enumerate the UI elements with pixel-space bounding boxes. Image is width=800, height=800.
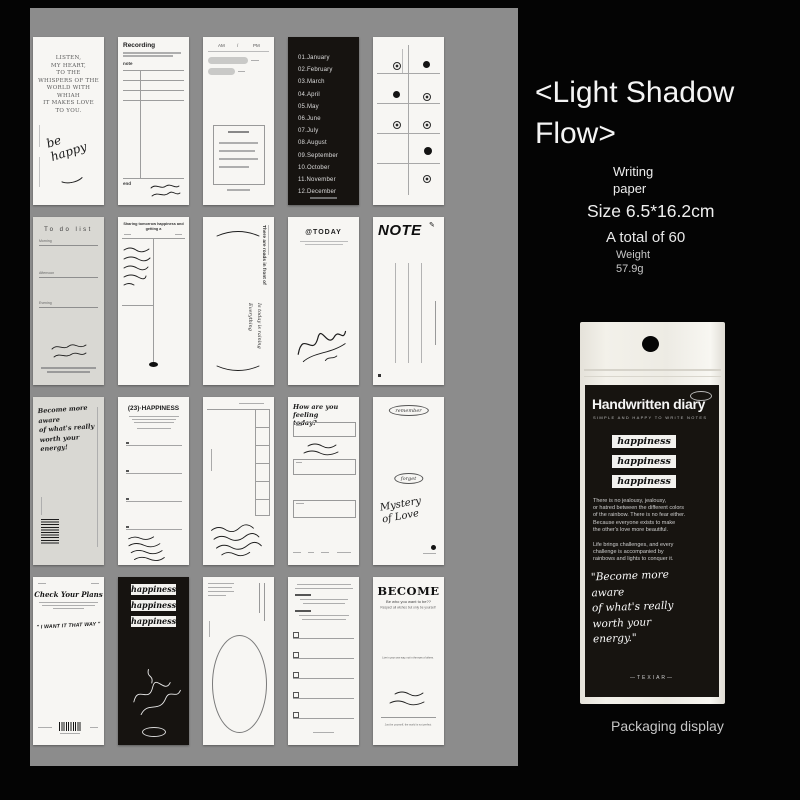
- divider-line: [381, 717, 436, 718]
- smile-arc: [56, 164, 87, 185]
- micro-text-line: [209, 621, 210, 637]
- micro-text: [337, 552, 351, 553]
- card-tomorrow-header: Sharing tomorrow happiness and getting a: [121, 222, 186, 232]
- ruled-line: [123, 70, 184, 71]
- paper-card-recording: Recording note end: [118, 37, 189, 205]
- table-line: [255, 499, 270, 500]
- micro-text: [132, 419, 176, 420]
- micro-text: [227, 189, 250, 191]
- packaging-footer-brand: —TEXIAR—: [585, 675, 719, 681]
- product-title: <Light Shadow Flow>: [535, 72, 734, 154]
- micro-text: [219, 158, 258, 160]
- signature-scribble: [118, 657, 188, 727]
- micro-text: [123, 52, 181, 54]
- packaging-quote: "Become more aware of what's really wort…: [591, 568, 675, 648]
- micro-text: [238, 71, 245, 72]
- card-become-gray-handwriting: Become more aware of what's really worth…: [37, 403, 100, 455]
- card-checkplans-handwriting: " I WANT IT THAT WAY ": [35, 621, 102, 630]
- solid-dot: [424, 147, 432, 155]
- micro-text: [129, 416, 179, 417]
- list-letter: [126, 498, 129, 500]
- happiness-label: happiness: [131, 600, 176, 611]
- packaging-caption: Packaging display: [611, 718, 724, 734]
- card-todolist-label1: Morning: [39, 239, 52, 243]
- highlight-blob: [208, 68, 235, 75]
- card-note-title: NOTE: [378, 222, 422, 239]
- micro-text: [297, 584, 351, 585]
- paper-card-happiness-list: (23)·HAPPINESS: [118, 397, 189, 565]
- table-line: [255, 481, 270, 482]
- circled-dot: [423, 175, 431, 183]
- column-line: [140, 70, 141, 179]
- happiness-label: happiness: [612, 475, 676, 488]
- micro-text: [60, 733, 80, 734]
- column-line: [153, 238, 154, 363]
- write-line: [293, 638, 354, 639]
- arc-bottom: [215, 363, 261, 375]
- write-line: [293, 718, 354, 719]
- paper-card-roads: There are roads in front of Is today is …: [203, 217, 274, 385]
- grid-line: [377, 163, 440, 164]
- paper-card-checkboxes: [288, 577, 359, 745]
- packaging-paragraph-2: Life brings challenges, and every challe…: [593, 542, 673, 564]
- seal-ridge: [584, 376, 721, 377]
- card-listen-text: LISTEN, MY HEART, TO THE WHISPERS OF THE…: [33, 55, 104, 115]
- handwriting-scribble: [387, 689, 431, 709]
- micro-text: [219, 166, 249, 168]
- happiness-label: happiness: [612, 455, 676, 468]
- grid-line: [377, 73, 440, 74]
- micro-text: [295, 588, 353, 589]
- circled-dot: [393, 62, 401, 70]
- card-become-title: BECOME: [373, 584, 444, 598]
- paper-card-feeling: How are you feeling today?: [288, 397, 359, 565]
- paper-card-table: [203, 397, 274, 565]
- table-line: [255, 515, 270, 516]
- micro-text: [308, 552, 314, 553]
- micro-text: [123, 55, 173, 57]
- ruled-line: [122, 305, 153, 306]
- paper-card-remember: remember forget Mystery of Love: [373, 397, 444, 565]
- card-roads-handwriting: Is today is raining Everything: [245, 303, 263, 349]
- corner-mark: [378, 374, 381, 377]
- ruled-line: [123, 90, 184, 91]
- brand-subtitle: Simple and happy to write notes: [593, 415, 707, 420]
- micro-text: [300, 599, 348, 600]
- packaging-photo: Handwritten diary Simple and happy to wr…: [580, 322, 725, 704]
- micro-text: [42, 605, 95, 606]
- write-line: [39, 245, 98, 246]
- pencil-icon: ✎: [429, 221, 435, 229]
- micro-text-line: [402, 49, 403, 73]
- micro-text: [239, 403, 264, 404]
- micro-text: [295, 594, 311, 596]
- card-todolist-label2: Afternoon: [39, 271, 54, 275]
- micro-text: [208, 595, 226, 596]
- micro-text: [47, 371, 90, 373]
- product-category: Writing paper: [613, 163, 653, 197]
- write-line: [126, 529, 182, 530]
- stamp-oval: [142, 727, 166, 737]
- arc-top: [215, 227, 261, 239]
- card-schedule-am: AM: [218, 43, 225, 48]
- micro-text: [208, 587, 232, 588]
- paper-card-today: @TODAY: [288, 217, 359, 385]
- seal-ridge: [584, 369, 721, 371]
- highlight-blob: [208, 57, 248, 64]
- write-line: [126, 473, 182, 474]
- micro-text-line: [259, 583, 260, 613]
- micro-text: [41, 367, 96, 369]
- signature-scribble: [49, 341, 89, 363]
- paper-card-listen: LISTEN, MY HEART, TO THE WHISPERS OF THE…: [33, 37, 104, 205]
- write-line: [39, 307, 98, 308]
- micro-text: [296, 462, 302, 463]
- grid-line: [408, 45, 409, 195]
- micro-text: [53, 608, 84, 609]
- happiness-label: happiness: [612, 435, 676, 448]
- grid-line: [377, 133, 440, 134]
- micro-text: [219, 142, 258, 144]
- card-roads-vertical-text: There are roads in front of: [261, 225, 266, 285]
- circled-dot: [393, 121, 401, 129]
- paper-card-checkplans: Check Your Plans " I WANT IT THAT WAY ": [33, 577, 104, 745]
- card-become-line3: Respect all wishes but only be yourself: [373, 606, 444, 610]
- micro-text-line: [39, 125, 40, 147]
- list-letter: [126, 526, 129, 528]
- micro-text: [305, 244, 343, 245]
- micro-text: [313, 732, 334, 733]
- product-size: Size 6.5*16.2cm: [587, 201, 714, 222]
- micro-text: [219, 150, 255, 152]
- card-remember-script: Mystery of Love: [379, 496, 424, 527]
- card-recording-end-label: end: [123, 181, 131, 186]
- micro-text: [134, 422, 174, 423]
- write-line: [293, 658, 354, 659]
- table-line: [255, 427, 270, 428]
- micro-text-line: [41, 497, 42, 515]
- write-line: [408, 263, 409, 363]
- micro-text: [208, 591, 234, 592]
- happiness-label: happiness: [131, 584, 176, 595]
- paper-card-happiness-black: happiness happiness happiness: [118, 577, 189, 745]
- paper-card-months: 01.January 02.February 03.March 04.April…: [288, 37, 359, 205]
- card-months-list: 01.January 02.February 03.March 04.April…: [298, 52, 338, 198]
- paper-card-tomorrow: Sharing tomorrow happiness and getting a: [118, 217, 189, 385]
- paper-card-become-gray: Become more aware of what's really worth…: [33, 397, 104, 565]
- micro-text: [296, 425, 302, 426]
- card-become-footer: Just be yourself, the world is not perfe…: [373, 723, 444, 726]
- micro-text: [423, 553, 436, 554]
- write-line: [293, 698, 354, 699]
- handwriting-scribble: [126, 533, 177, 563]
- micro-text: [293, 552, 301, 553]
- table-line: [207, 409, 270, 410]
- stamp-dot: [431, 545, 436, 550]
- paper-card-grid-dots: [373, 37, 444, 205]
- micro-text: [38, 583, 46, 584]
- write-line: [395, 263, 396, 363]
- write-line: [293, 678, 354, 679]
- handwriting-scribble: [302, 441, 346, 457]
- barcode: [59, 722, 82, 731]
- packaging-paragraph-1: There is no jealousy, jealousy, or hatre…: [593, 498, 685, 534]
- card-happiness-list-title: (23)·HAPPINESS: [118, 405, 189, 412]
- hang-hole: [642, 336, 659, 352]
- paper-cards-grid: LISTEN, MY HEART, TO THE WHISPERS OF THE…: [33, 37, 444, 745]
- paper-card-todolist: To do list Morning Afternoon Evening: [33, 217, 104, 385]
- ruled-line: [123, 80, 184, 81]
- list-letter: [126, 442, 129, 444]
- micro-text: [39, 602, 98, 603]
- paper-card-become-white: BECOME Be who you want to be?? Respect a…: [373, 577, 444, 745]
- answer-box: [293, 500, 356, 518]
- micro-text: [302, 619, 346, 620]
- paper-card-note: NOTE ✎: [373, 217, 444, 385]
- micro-text: [91, 583, 99, 584]
- card-become-midline: Live in your own way, not in the eyes of…: [374, 656, 442, 659]
- micro-text-line: [211, 449, 212, 471]
- micro-text: [310, 197, 337, 199]
- ruled-line: [208, 51, 269, 52]
- micro-text: [208, 583, 234, 584]
- barcode: [41, 519, 59, 545]
- ellipse-outline: [212, 635, 267, 733]
- card-todolist-title: To do list: [33, 227, 104, 233]
- ruled-line: [123, 178, 184, 179]
- paper-card-oval: [203, 577, 274, 745]
- micro-text: [303, 603, 345, 604]
- card-recording-title: Recording: [123, 42, 155, 49]
- card-schedule-pm: PM: [253, 43, 260, 48]
- card-schedule-slash: /: [237, 43, 238, 48]
- micro-text: [300, 241, 348, 242]
- brand-title: Handwritten diary: [592, 396, 705, 412]
- answer-box: [293, 459, 356, 475]
- answer-box: [293, 422, 356, 437]
- micro-text-line: [435, 301, 436, 345]
- product-total: A total of 60: [606, 229, 685, 246]
- signature-scribble: [148, 181, 182, 201]
- handwriting-scribble: [122, 245, 152, 287]
- card-checkplans-title: Check Your Plans: [33, 590, 104, 599]
- write-line: [126, 501, 182, 502]
- micro-text-line: [264, 583, 265, 621]
- forget-badge: forget: [394, 473, 423, 484]
- solid-dot: [393, 91, 400, 98]
- signature-scribble: [290, 317, 352, 370]
- micro-text: [137, 428, 171, 429]
- micro-text-line: [39, 157, 40, 187]
- micro-text: [124, 234, 131, 235]
- card-listen-handwriting: be happy: [45, 126, 89, 164]
- circled-dot: [423, 121, 431, 129]
- card-recording-note-label: note: [123, 61, 133, 66]
- grid-line: [377, 103, 440, 104]
- handwriting-scribble: [208, 520, 268, 559]
- write-line: [39, 277, 98, 278]
- solid-dot: [423, 61, 430, 68]
- micro-text: [175, 234, 182, 235]
- micro-text: [38, 727, 52, 728]
- micro-text: [295, 610, 311, 612]
- card-become-subtitle: Be who you want to be??: [373, 599, 444, 604]
- card-todolist-label3: Evening: [39, 301, 52, 305]
- write-line: [126, 445, 182, 446]
- micro-text: [299, 615, 349, 616]
- happiness-label: happiness: [131, 616, 176, 627]
- micro-text: [321, 552, 329, 553]
- diary-card: Handwritten diary Simple and happy to wr…: [585, 385, 719, 697]
- ruled-line: [123, 100, 184, 101]
- remember-badge: remember: [388, 405, 428, 416]
- list-letter: [126, 470, 129, 472]
- write-line: [421, 263, 422, 363]
- circled-dot: [423, 93, 431, 101]
- micro-text-line: [268, 225, 269, 255]
- quote-box: [213, 125, 265, 185]
- micro-text: [296, 503, 304, 504]
- table-line: [255, 463, 270, 464]
- micro-text: [90, 727, 98, 728]
- paper-card-schedule: AM / PM: [203, 37, 274, 205]
- micro-text: [228, 131, 249, 133]
- product-weight: Weight 57.9g: [616, 248, 650, 276]
- micro-text-line: [97, 407, 98, 547]
- ink-blob: [149, 362, 158, 367]
- micro-text: [251, 60, 259, 61]
- card-today-title: @TODAY: [288, 229, 359, 236]
- table-line: [255, 445, 270, 446]
